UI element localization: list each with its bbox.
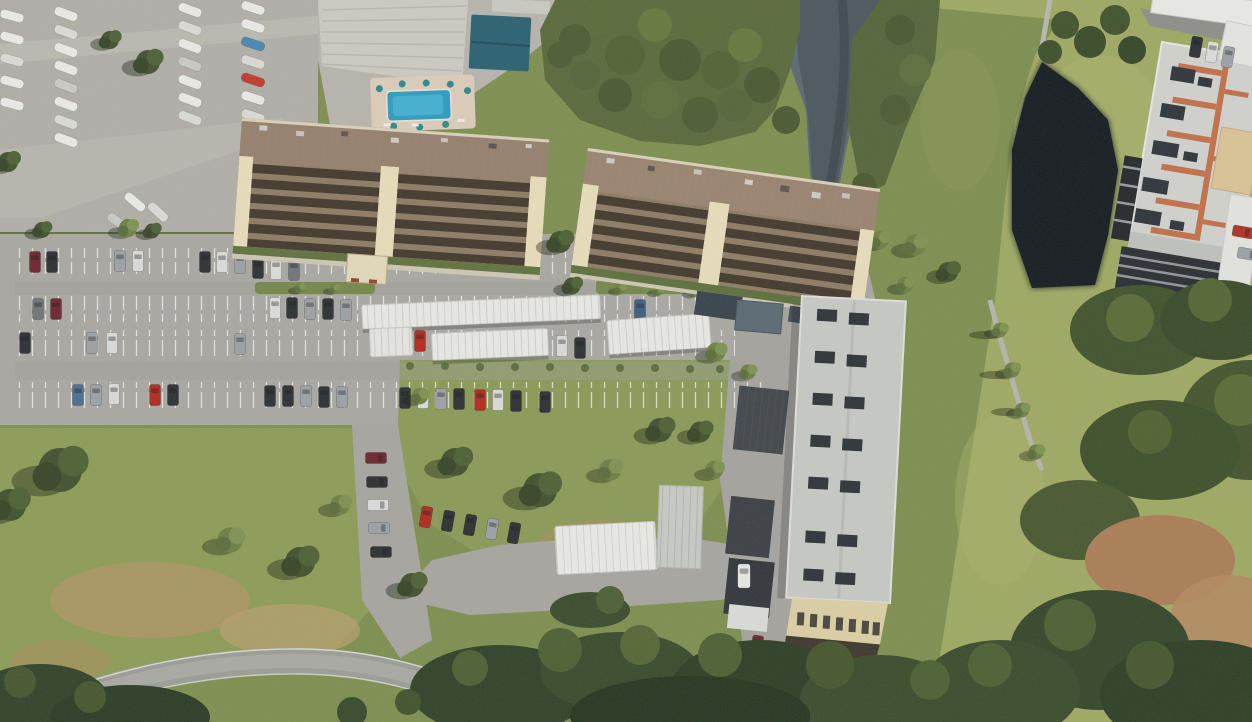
photo-grain-overlay — [0, 0, 1252, 722]
satellite-imagery — [0, 0, 1252, 722]
aerial-map-view[interactable] — [0, 0, 1252, 722]
